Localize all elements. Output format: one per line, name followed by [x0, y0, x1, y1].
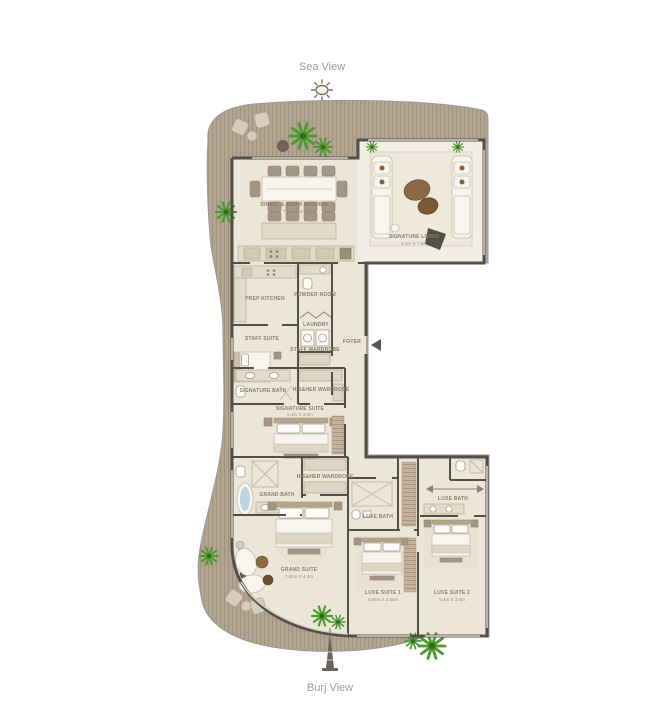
- toilet: [303, 278, 312, 289]
- room-label-staff-suite: STAFF SUITE: [245, 336, 280, 342]
- room-dims-dining: 7m X 8.8m: [283, 209, 305, 214]
- nightstand: [264, 418, 272, 426]
- bed-bench: [440, 558, 462, 562]
- room-label-signature-living: SIGNATURE LIVING: [389, 234, 439, 240]
- sea-view-label: Sea View: [299, 61, 345, 73]
- corridor-flooring: [402, 462, 416, 526]
- fire-pit: [277, 140, 289, 152]
- room-dims-grand-suite: 7.65m X 4.3m: [285, 574, 313, 579]
- room-dims-luxe-suite-1: 4.55m X 3.55m: [368, 597, 399, 602]
- sink: [246, 373, 255, 379]
- sink: [320, 267, 326, 273]
- nightstand: [424, 520, 431, 527]
- luxe-wardrobe: [404, 538, 416, 592]
- pouf: [256, 556, 268, 568]
- sofa-right: [452, 156, 472, 238]
- room-label-prep-kitchen: PREP KITCHEN: [245, 296, 285, 302]
- side-table: [391, 224, 399, 232]
- room-label-signature-bath: SIGNATURE BATH: [240, 388, 287, 394]
- bed-bench: [288, 549, 320, 554]
- nightstand: [268, 502, 276, 510]
- nightstand: [274, 352, 281, 359]
- floorplan-page: Sea View: [0, 0, 660, 710]
- burj-view-label: Burj View: [307, 682, 353, 694]
- pouf: [263, 575, 273, 585]
- room-dims-luxe-suite-2: 5.4m X 3.6m: [439, 597, 465, 602]
- room-label-grand-suite: GRAND SUITE: [281, 567, 318, 573]
- nightstand: [354, 538, 361, 545]
- room-label-master-wardrobe: HIS&HER WARDROBE: [293, 387, 350, 393]
- room-label-dining: DINING & SHOW KITCHEN: [260, 202, 327, 208]
- bed-bench: [370, 576, 394, 580]
- sun-icon: [312, 80, 333, 100]
- room-label-luxe-suite-1: LUXE SUITE 1: [365, 590, 401, 596]
- room-label-luxe-bath-1: LUXE BATH: [363, 514, 393, 520]
- room-label-grand-bath: GRAND BATH: [259, 492, 294, 498]
- suite-wardrobe: [332, 416, 344, 454]
- side-table: [236, 541, 244, 549]
- nightstand: [334, 502, 342, 510]
- kitchen-counter: [238, 246, 354, 261]
- show-kitchen-island: [262, 212, 336, 239]
- sofa-left: [372, 156, 392, 238]
- room-dims-signature-living: 8.4m X 7.5m: [401, 241, 427, 246]
- vanity: [236, 370, 290, 381]
- room-dims-signature-suite: 5.4m X 3.6m: [287, 412, 313, 417]
- room-label-luxe-bath-2: LUXE BATH: [438, 496, 468, 502]
- room-label-foyer: FOYER: [343, 339, 361, 345]
- room-label-laundry: LAUNDRY: [303, 322, 329, 328]
- sink: [270, 373, 279, 379]
- nightstand: [471, 520, 478, 527]
- room-label-staff-wardrobe: STAFF WARDROBE: [290, 347, 340, 353]
- room-label-grand-wardrobe: HIS&HER WARDROBE: [297, 474, 354, 480]
- room-label-luxe-suite-2: LUXE SUITE 2: [434, 590, 470, 596]
- toilet: [352, 510, 360, 519]
- staff-wardrobe-shelves: [300, 354, 330, 365]
- room-label-powder-room: POWDER ROOM: [294, 292, 336, 298]
- toilet: [456, 461, 465, 471]
- toilet: [236, 466, 245, 477]
- entry-arrow-icon: [371, 339, 381, 351]
- floorplan-canvas: Sea View: [0, 0, 660, 710]
